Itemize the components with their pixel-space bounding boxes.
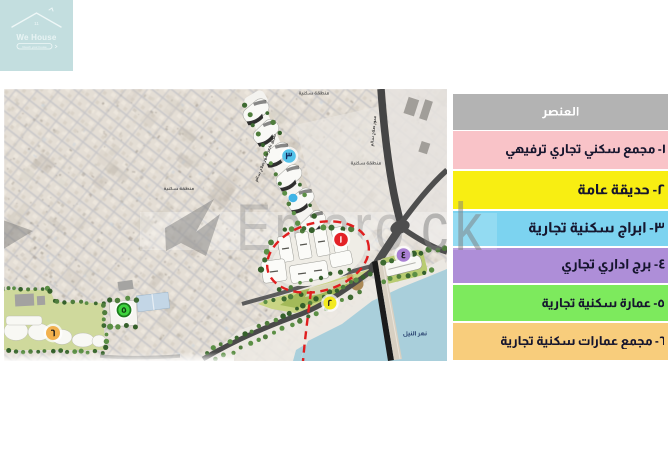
svg-text:Reach your house: Reach your house [22,45,47,49]
svg-text:We House: We House [16,33,56,42]
svg-text:11: 11 [34,21,39,26]
